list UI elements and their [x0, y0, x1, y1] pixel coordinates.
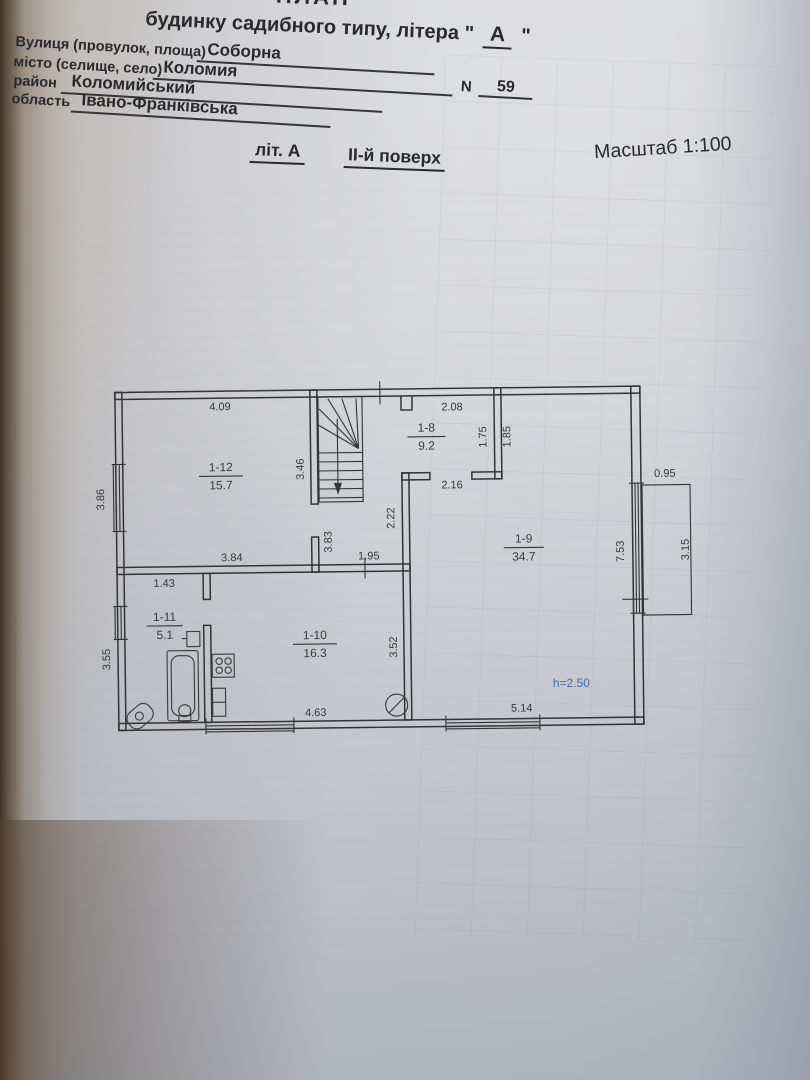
room-label-1-11: 1-11 5.1 — [146, 610, 182, 642]
svg-text:1-12: 1-12 — [209, 460, 234, 474]
letter-subtitle: літ. А — [250, 139, 306, 165]
dim-3.46: 3.46 — [295, 458, 307, 480]
wall-notch — [401, 396, 412, 410]
dim-3.55: 3.55 — [101, 649, 113, 671]
kitchen-sink — [212, 688, 225, 716]
field-region-label: область — [11, 91, 71, 110]
svg-text:16.3: 16.3 — [303, 646, 327, 660]
dim-2.22: 2.22 — [385, 507, 397, 529]
field-district-label: район — [13, 73, 57, 92]
bathtub — [167, 650, 199, 720]
field-region: область Івано-Франківська — [11, 90, 71, 111]
svg-text:1-10: 1-10 — [303, 628, 328, 642]
window-left-1-11 — [113, 606, 127, 639]
dim-1.43: 1.43 — [153, 578, 175, 590]
room-label-1-10: 1-10 16.3 — [293, 628, 337, 661]
dim-3.86: 3.86 — [95, 489, 107, 511]
svg-text:1-11: 1-11 — [153, 610, 177, 624]
fixtures — [123, 629, 408, 732]
floor-subtitle: ІІ-й поверх — [344, 144, 446, 172]
interior-walls — [115, 388, 505, 724]
washbasin — [124, 700, 157, 732]
dim-2.16: 2.16 — [441, 479, 463, 491]
window-bottom-1-9 — [446, 714, 540, 731]
doc-title-partial: ПЛАН — [276, 0, 352, 11]
svg-text:1-8: 1-8 — [418, 421, 436, 435]
svg-text:34.7: 34.7 — [512, 549, 536, 563]
svg-text:5.1: 5.1 — [156, 628, 173, 642]
water-heater — [182, 631, 200, 646]
svg-text:15.7: 15.7 — [209, 478, 233, 492]
dim-1.95: 1.95 — [358, 550, 380, 562]
dim-3.15: 3.15 — [680, 539, 692, 561]
dim-7.53: 7.53 — [615, 541, 627, 563]
dim-0.95: 0.95 — [654, 468, 676, 480]
wall-ticks — [363, 378, 649, 602]
floor-plan-drawing: 1-12 15.7 1-8 9.2 1-9 34.7 1-10 16.3 1-1… — [90, 364, 715, 772]
svg-text:9.2: 9.2 — [418, 439, 435, 453]
dim-3.52: 3.52 — [388, 636, 400, 658]
house-number-value: 59 — [478, 77, 533, 100]
stove — [212, 654, 234, 677]
room-label-1-8: 1-8 9.2 — [407, 420, 445, 452]
house-number-label: N — [460, 78, 472, 96]
window-left-1-12 — [112, 464, 127, 531]
dim-1.85: 1.85 — [501, 426, 513, 448]
dim-1.75: 1.75 — [477, 426, 489, 448]
ceiling-height-note: h=2.50 — [553, 676, 591, 690]
windows — [112, 458, 647, 735]
room-label-1-12: 1-12 15.7 — [199, 460, 243, 493]
staircase — [318, 396, 363, 502]
dim-5.14: 5.14 — [511, 702, 533, 714]
toilet — [179, 705, 191, 722]
dim-4.63: 4.63 — [305, 707, 327, 719]
dimension-labels: 4.09 3.86 3.46 3.84 3.83 1.95 2.22 2.08 … — [94, 395, 694, 721]
building-letter: А — [482, 22, 512, 49]
window-bottom-1-10 — [206, 717, 294, 734]
dim-3.83: 3.83 — [323, 531, 335, 553]
building-line-prefix: будинку садибного типу, літера " — [145, 8, 475, 45]
floor-plan-document-photo: ПЛАН будинку садибного типу, літера "А" … — [0, 0, 810, 1080]
svg-text:1-9: 1-9 — [515, 531, 533, 545]
dim-2.08: 2.08 — [441, 401, 463, 413]
dim-3.84: 3.84 — [221, 552, 243, 564]
dim-4.09: 4.09 — [209, 401, 231, 413]
room-label-1-9: 1-9 34.7 — [504, 531, 544, 563]
building-line-suffix: " — [521, 25, 531, 47]
